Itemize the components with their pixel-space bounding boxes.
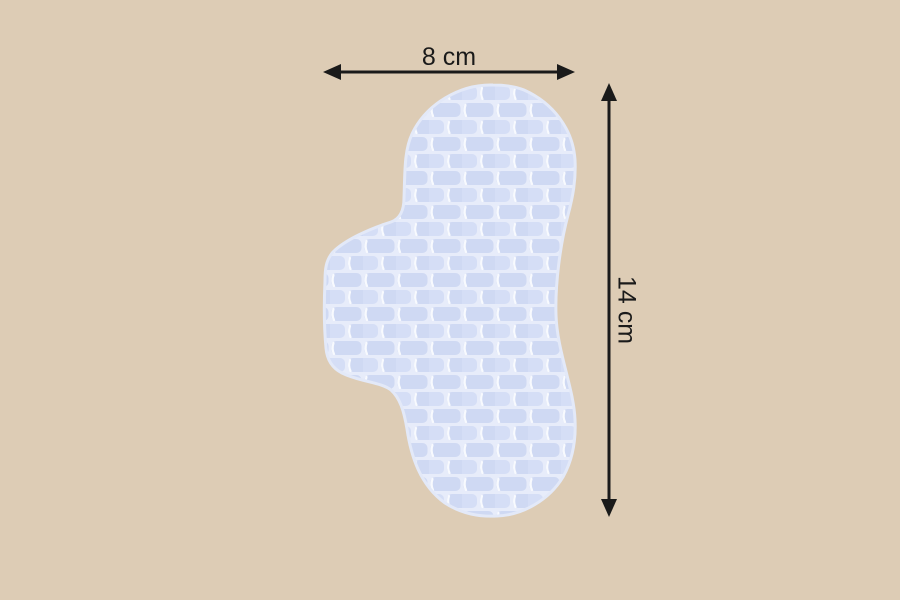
width-dimension-label: 8 cm <box>422 45 476 70</box>
arrowhead-right-icon <box>557 64 575 80</box>
diagram-canvas: 8 cm 14 cm <box>0 0 900 600</box>
diagram-graphics <box>0 0 900 600</box>
pad-shape <box>324 85 575 516</box>
arrowhead-down-icon <box>601 499 617 517</box>
arrowhead-up-icon <box>601 83 617 101</box>
height-dimension-label: 14 cm <box>614 276 639 344</box>
arrowhead-left-icon <box>323 64 341 80</box>
